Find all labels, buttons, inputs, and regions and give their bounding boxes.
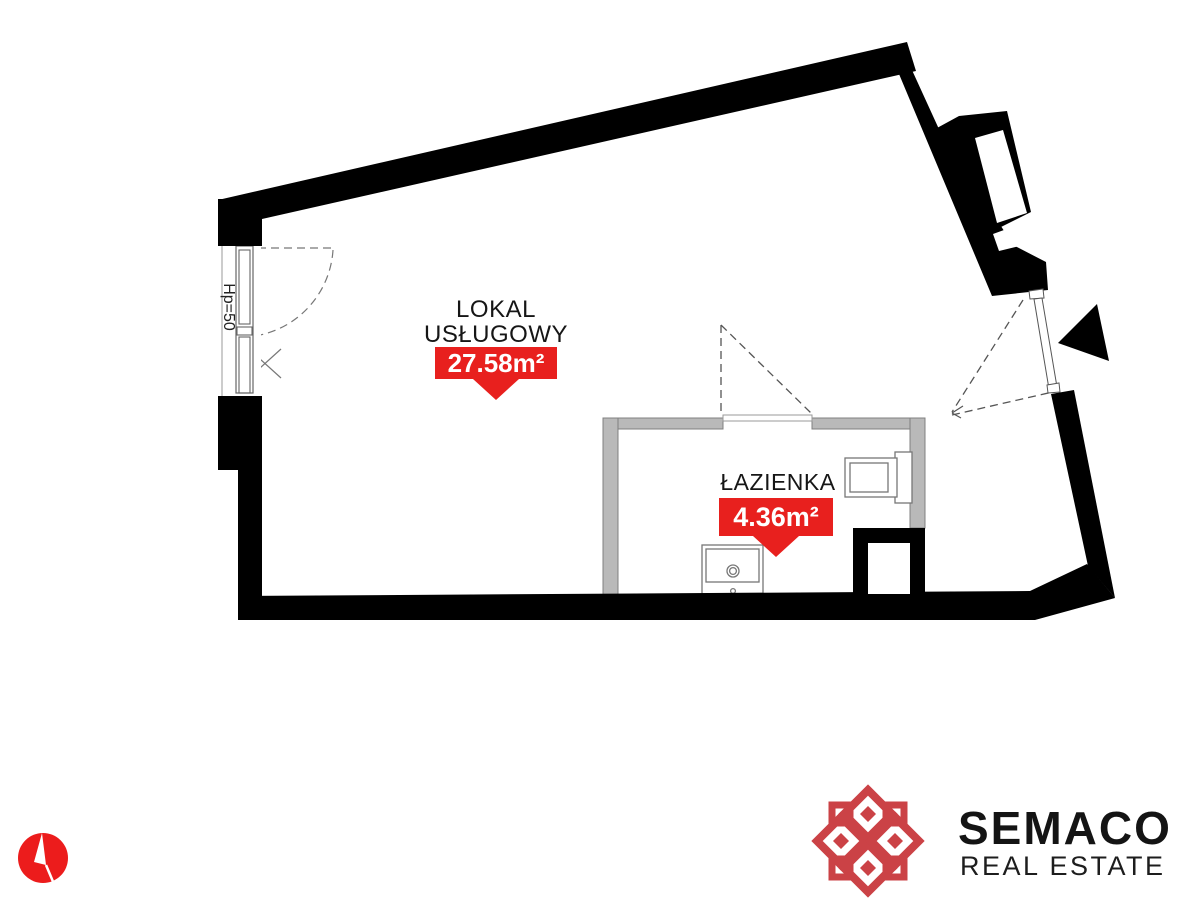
logo-knot-icon <box>817 790 919 892</box>
left-wall-bottom <box>238 468 262 599</box>
bathroom-door-swing <box>721 325 811 413</box>
entrance-door-leaf <box>1029 289 1060 393</box>
bathroom-name: ŁAZIENKA <box>712 470 844 494</box>
bathroom-label: ŁAZIENKA <box>712 470 844 494</box>
exterior-walls <box>218 42 1115 620</box>
company-name: SEMACO <box>958 801 1172 855</box>
left-wall-top <box>218 199 262 246</box>
entry-door-swing-arrowhead <box>952 406 963 418</box>
main-room-label: LOKAL USŁUGOWY <box>404 297 588 347</box>
bathroom-area-value: 4.36m² <box>733 502 819 533</box>
main-room-area-value: 27.58m² <box>448 348 545 379</box>
left-wall-mid <box>218 396 262 470</box>
toilet <box>845 452 912 503</box>
bathroom-area-badge: 4.36m² <box>719 498 833 536</box>
entrance-arrow-icon <box>1058 304 1109 361</box>
top-wall <box>218 42 916 219</box>
floor-plan-drawing: Hp=50 <box>0 0 1200 918</box>
main-room-area-badge: 27.58m² <box>435 347 557 379</box>
floor-plan-page: Hp=50 <box>0 0 1200 918</box>
wall-openings <box>868 130 1032 594</box>
bottom-wall <box>238 564 1115 620</box>
main-room-name-line2: USŁUGOWY <box>404 322 588 347</box>
company-tagline: REAL ESTATE <box>960 851 1166 882</box>
north-compass-icon <box>18 833 68 884</box>
ventilation-shaft-interior <box>868 543 910 594</box>
main-room-name-line1: LOKAL <box>404 297 588 322</box>
window-height-label: Hp=50 <box>220 283 237 331</box>
bathroom-threshold <box>723 415 812 421</box>
